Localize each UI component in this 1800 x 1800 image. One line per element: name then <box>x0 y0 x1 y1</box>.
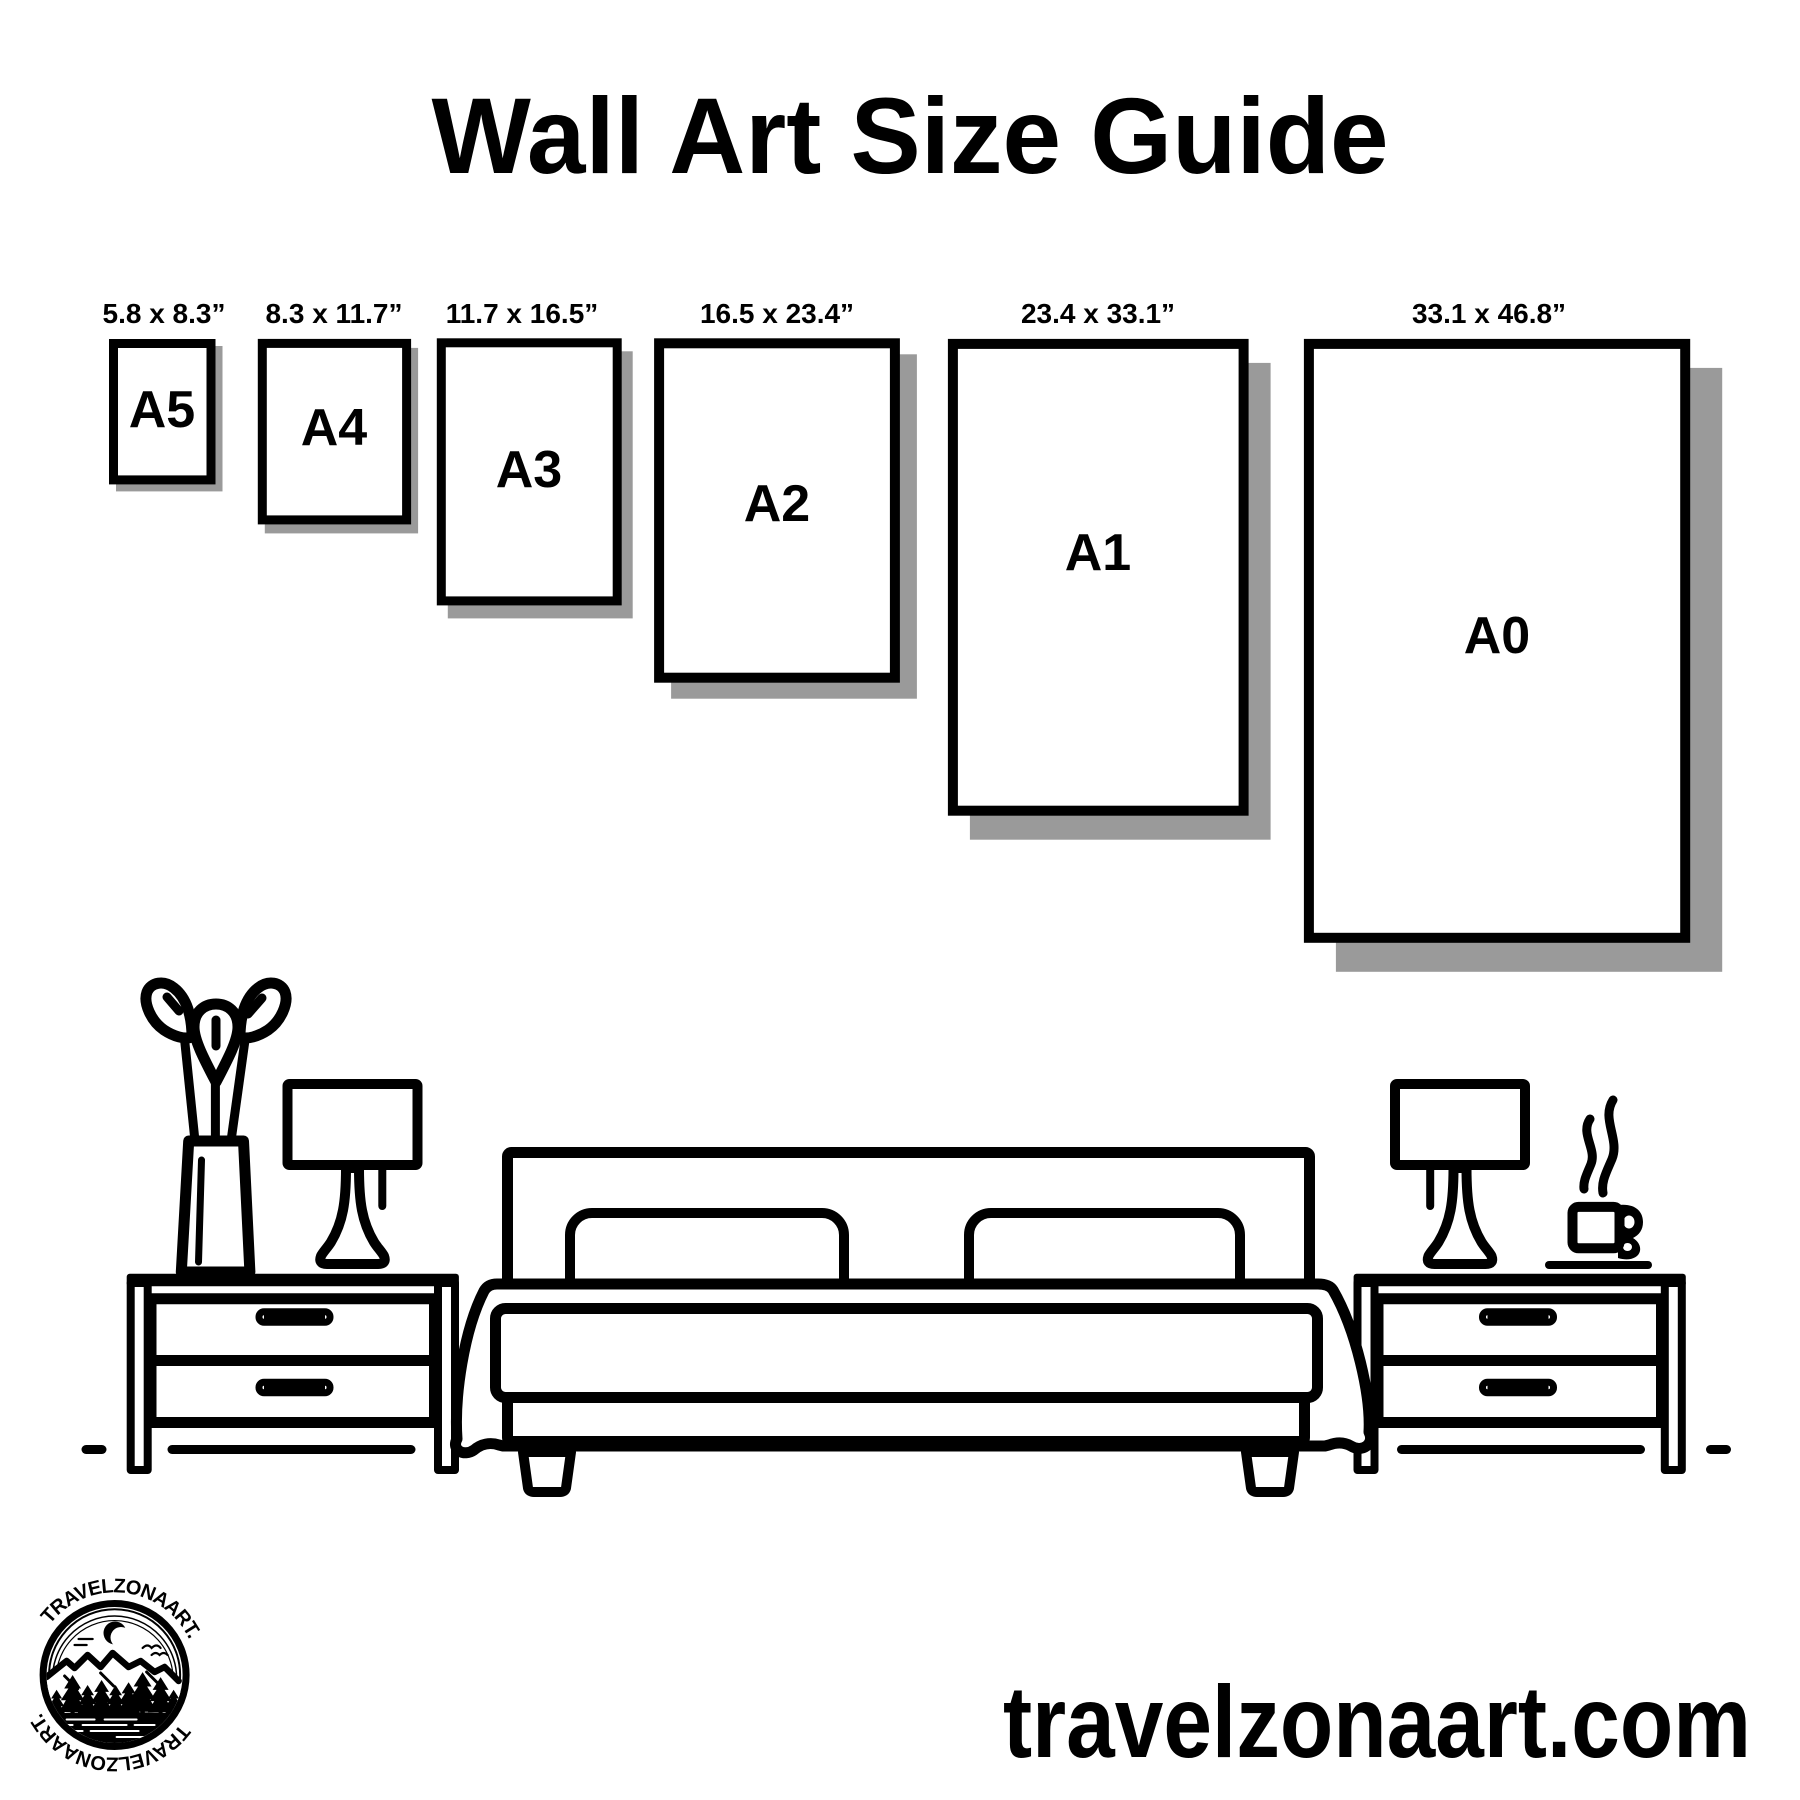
svg-text:A4: A4 <box>301 399 368 457</box>
svg-text:A3: A3 <box>496 441 562 499</box>
svg-text:11.7 x 16.5”: 11.7 x 16.5” <box>446 298 599 329</box>
svg-text:5.8 x 8.3”: 5.8 x 8.3” <box>103 298 226 329</box>
svg-text:23.4 x 33.1”: 23.4 x 33.1” <box>1021 298 1175 329</box>
svg-text:33.1 x 46.8”: 33.1 x 46.8” <box>1412 298 1566 329</box>
svg-text:travelzonaart.com: travelzonaart.com <box>1003 1665 1751 1779</box>
svg-text:A0: A0 <box>1464 607 1530 665</box>
svg-text:Wall Art Size Guide: Wall Art Size Guide <box>432 75 1389 196</box>
svg-text:16.5 x 23.4”: 16.5 x 23.4” <box>700 298 854 329</box>
svg-text:A2: A2 <box>744 475 810 533</box>
svg-text:A1: A1 <box>1065 524 1131 582</box>
svg-text:A5: A5 <box>129 381 195 439</box>
svg-text:8.3 x 11.7”: 8.3 x 11.7” <box>265 298 402 329</box>
